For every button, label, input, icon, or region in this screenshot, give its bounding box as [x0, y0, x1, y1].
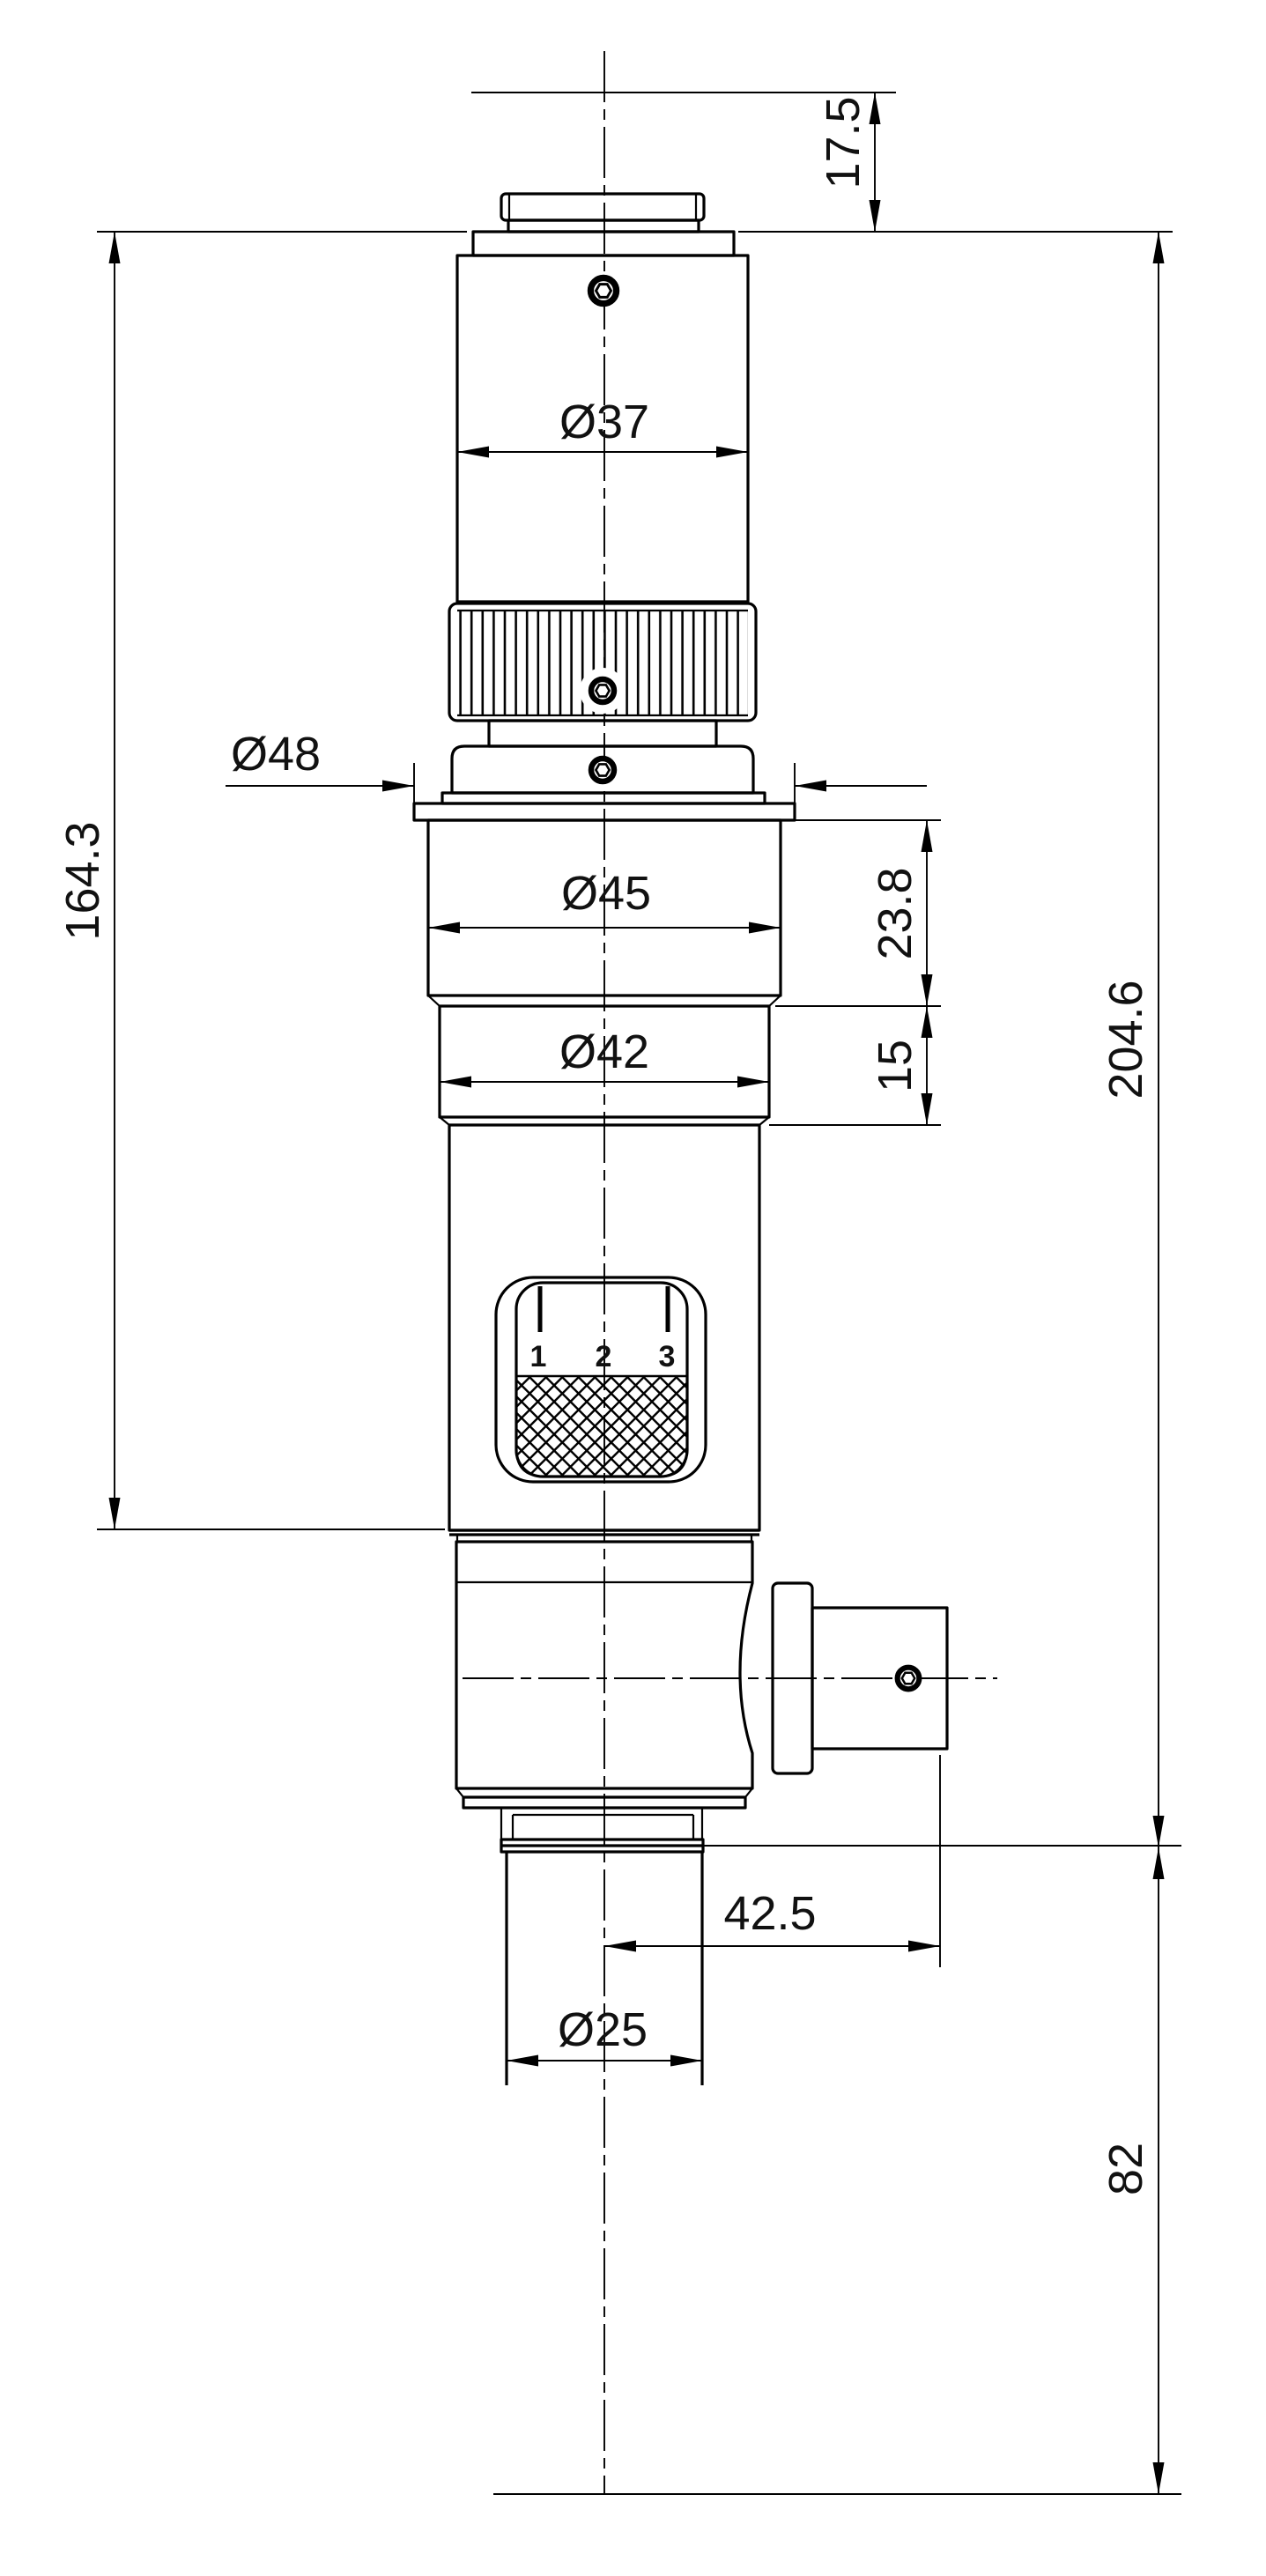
dim-label-42-5: 42.5 [723, 1887, 816, 1940]
drawing-canvas: 1 2 3 [0, 0, 1266, 2576]
arrowhead [109, 1498, 121, 1529]
arrowhead [382, 781, 414, 792]
arrowhead [109, 232, 121, 263]
scale-label-1: 1 [530, 1340, 547, 1373]
arrowhead [1153, 2462, 1165, 2494]
microscope-assembly-drawing: 1 2 3 [0, 0, 1266, 2576]
arrowhead [604, 1941, 636, 1952]
centerlines [463, 51, 997, 2494]
arrowhead [507, 2055, 538, 2067]
set-screw-ring [591, 679, 614, 702]
dim-label-17-5: 17.5 [817, 96, 870, 189]
dim-label-d25: Ø25 [558, 2003, 648, 2056]
neck [489, 721, 716, 746]
arrowhead [795, 781, 826, 792]
arrowhead [440, 1077, 471, 1088]
arrowhead [737, 1077, 769, 1088]
arrowhead [457, 447, 489, 458]
set-screw-flange [591, 759, 614, 781]
dim-label-82: 82 [1099, 2143, 1152, 2195]
dim-label-15: 15 [869, 1040, 922, 1092]
lower-body [449, 1530, 947, 1788]
dim-label-d37: Ø37 [559, 396, 649, 448]
flange-step [442, 793, 765, 803]
dim-label-d45: Ø45 [561, 867, 651, 920]
arrowhead [1153, 232, 1165, 263]
mount-relief [501, 1808, 702, 1839]
arrowhead [922, 974, 933, 1006]
arrowhead [670, 2055, 702, 2067]
scale-label-3: 3 [659, 1340, 676, 1373]
cap-step [508, 220, 699, 232]
arrowhead [922, 820, 933, 852]
dim-label-164-3: 164.3 [56, 821, 109, 940]
arrowhead [428, 922, 460, 934]
arrowhead [716, 447, 748, 458]
knurled-ring [449, 603, 756, 721]
set-screw-top [590, 278, 616, 303]
eyepiece-cap [501, 194, 704, 220]
arrowhead [749, 922, 781, 934]
top-flange [473, 232, 734, 255]
dimension-lines [109, 93, 1165, 2494]
arrowhead [870, 93, 881, 124]
arrowhead [922, 1006, 933, 1038]
arrowhead [1153, 1816, 1165, 1847]
dim-label-d48: Ø48 [231, 728, 321, 781]
dim-label-23-8: 23.8 [869, 867, 922, 959]
dim-label-204-6: 204.6 [1099, 980, 1152, 1099]
arrowhead [1153, 1847, 1165, 1879]
arrowhead [870, 200, 881, 232]
grip-crosshatch [516, 1376, 687, 1477]
set-screw-knob [898, 1668, 920, 1690]
arrowhead [922, 1093, 933, 1125]
scale-label-2: 2 [596, 1340, 612, 1373]
dim-label-d42: Ø42 [559, 1025, 649, 1078]
arrowhead [908, 1941, 940, 1952]
